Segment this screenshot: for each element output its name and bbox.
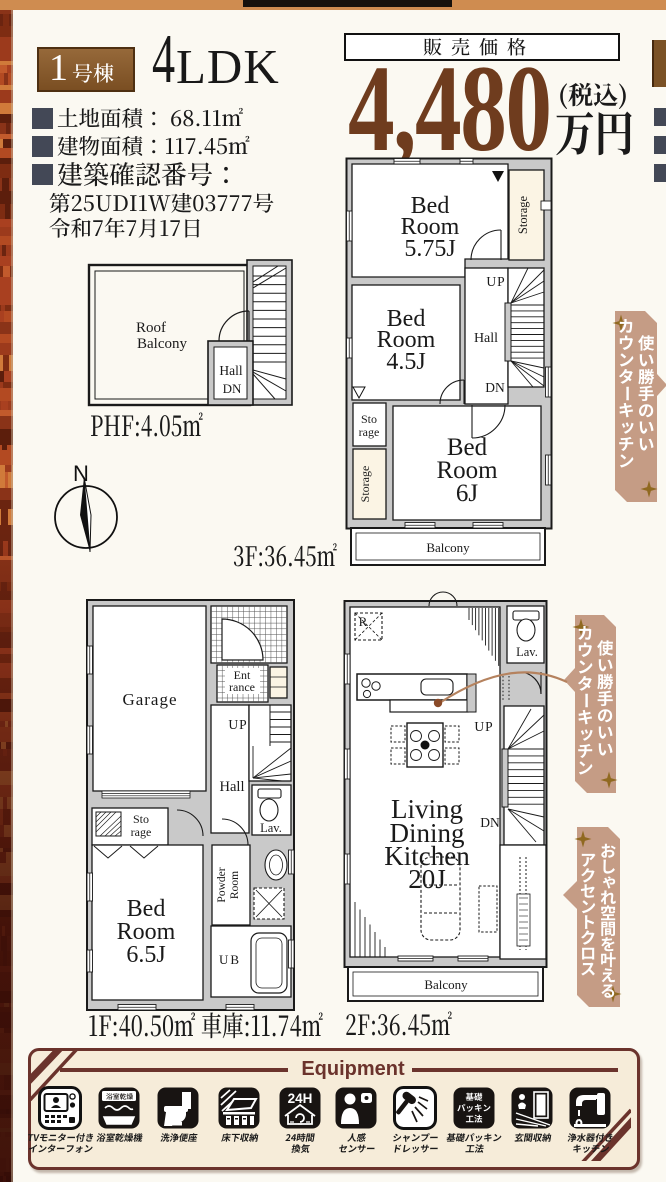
- svg-text:Balcony: Balcony: [426, 540, 470, 555]
- svg-text:rage: rage: [131, 825, 152, 839]
- svg-text:5.75J: 5.75J: [404, 236, 455, 262]
- svg-text:DN: DN: [485, 380, 505, 395]
- svg-text:Roof: Roof: [136, 320, 166, 336]
- svg-text:rage: rage: [359, 425, 380, 439]
- svg-text:Balcony: Balcony: [424, 977, 468, 992]
- svg-text:Lav.: Lav.: [516, 645, 538, 659]
- svg-text:6.5J: 6.5J: [126, 942, 165, 968]
- svg-text:DN: DN: [480, 815, 500, 830]
- svg-text:UP: UP: [474, 719, 493, 734]
- svg-text:20J: 20J: [408, 864, 446, 894]
- svg-text:Lav.: Lav.: [260, 821, 282, 835]
- svg-text:4.5J: 4.5J: [386, 349, 425, 375]
- svg-text:UB: UB: [219, 952, 241, 967]
- svg-text:Garage: Garage: [122, 690, 177, 709]
- svg-text:Storage: Storage: [516, 195, 530, 234]
- svg-text:Storage: Storage: [358, 466, 372, 503]
- svg-text:UP: UP: [486, 274, 505, 289]
- svg-text:Sto: Sto: [361, 412, 377, 426]
- svg-text:Sto: Sto: [133, 812, 149, 826]
- svg-text:Room: Room: [229, 871, 241, 899]
- svg-text:UP: UP: [228, 717, 247, 732]
- svg-text:6J: 6J: [456, 480, 479, 507]
- svg-text:Balcony: Balcony: [137, 336, 187, 352]
- svg-text:Hall: Hall: [474, 331, 498, 346]
- svg-text:rance: rance: [229, 680, 255, 694]
- svg-text:R: R: [359, 614, 368, 629]
- svg-text:24H: 24H: [288, 1091, 313, 1106]
- svg-text:DN: DN: [223, 381, 242, 396]
- svg-text:N: N: [73, 461, 89, 486]
- svg-text:Hall: Hall: [220, 779, 245, 795]
- svg-text:Powder: Powder: [216, 867, 228, 902]
- svg-text:Hall: Hall: [219, 363, 242, 378]
